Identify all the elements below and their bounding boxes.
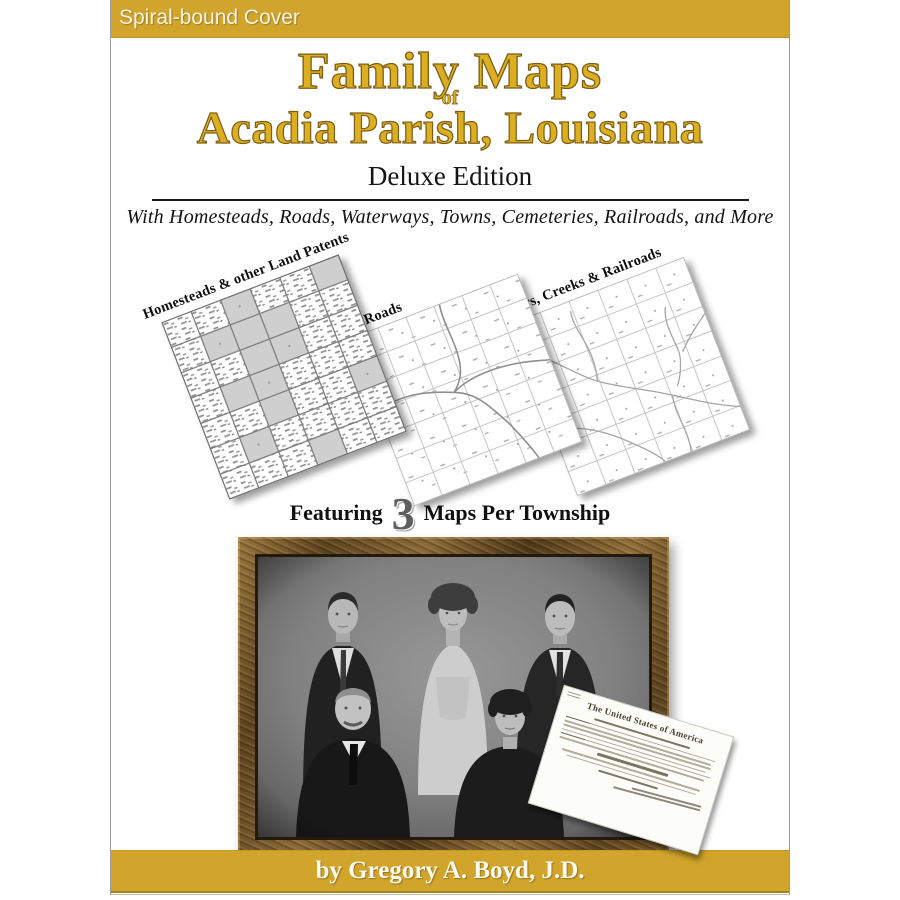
title-line2: Acadia Parish, Louisiana (111, 104, 789, 152)
featuring-line: Featuring 3 Maps Per Township (111, 487, 789, 540)
byline-bar: by Gregory A. Boyd, J.D. (111, 850, 789, 893)
book-cover: Spiral-bound Cover Family Maps of Acadia… (0, 0, 900, 900)
subtitle: With Homesteads, Roads, Waterways, Towns… (111, 206, 789, 229)
byline-text: by Gregory A. Boyd, J.D. (316, 851, 585, 891)
featuring-suffix: Maps Per Township (424, 500, 611, 525)
document-corner-marks (567, 691, 581, 700)
edition-label: Deluxe Edition (111, 161, 789, 192)
title-divider (152, 199, 749, 201)
title-block: Family Maps of Acadia Parish, Louisiana … (111, 46, 789, 229)
map-homesteads: Homesteads & other Land Patents (161, 254, 406, 499)
spiral-banner-label: Spiral-bound Cover (111, 0, 789, 30)
cover-area: Spiral-bound Cover Family Maps of Acadia… (110, 0, 790, 895)
featuring-prefix: Featuring (290, 500, 383, 525)
spiral-banner: Spiral-bound Cover (111, 0, 789, 38)
